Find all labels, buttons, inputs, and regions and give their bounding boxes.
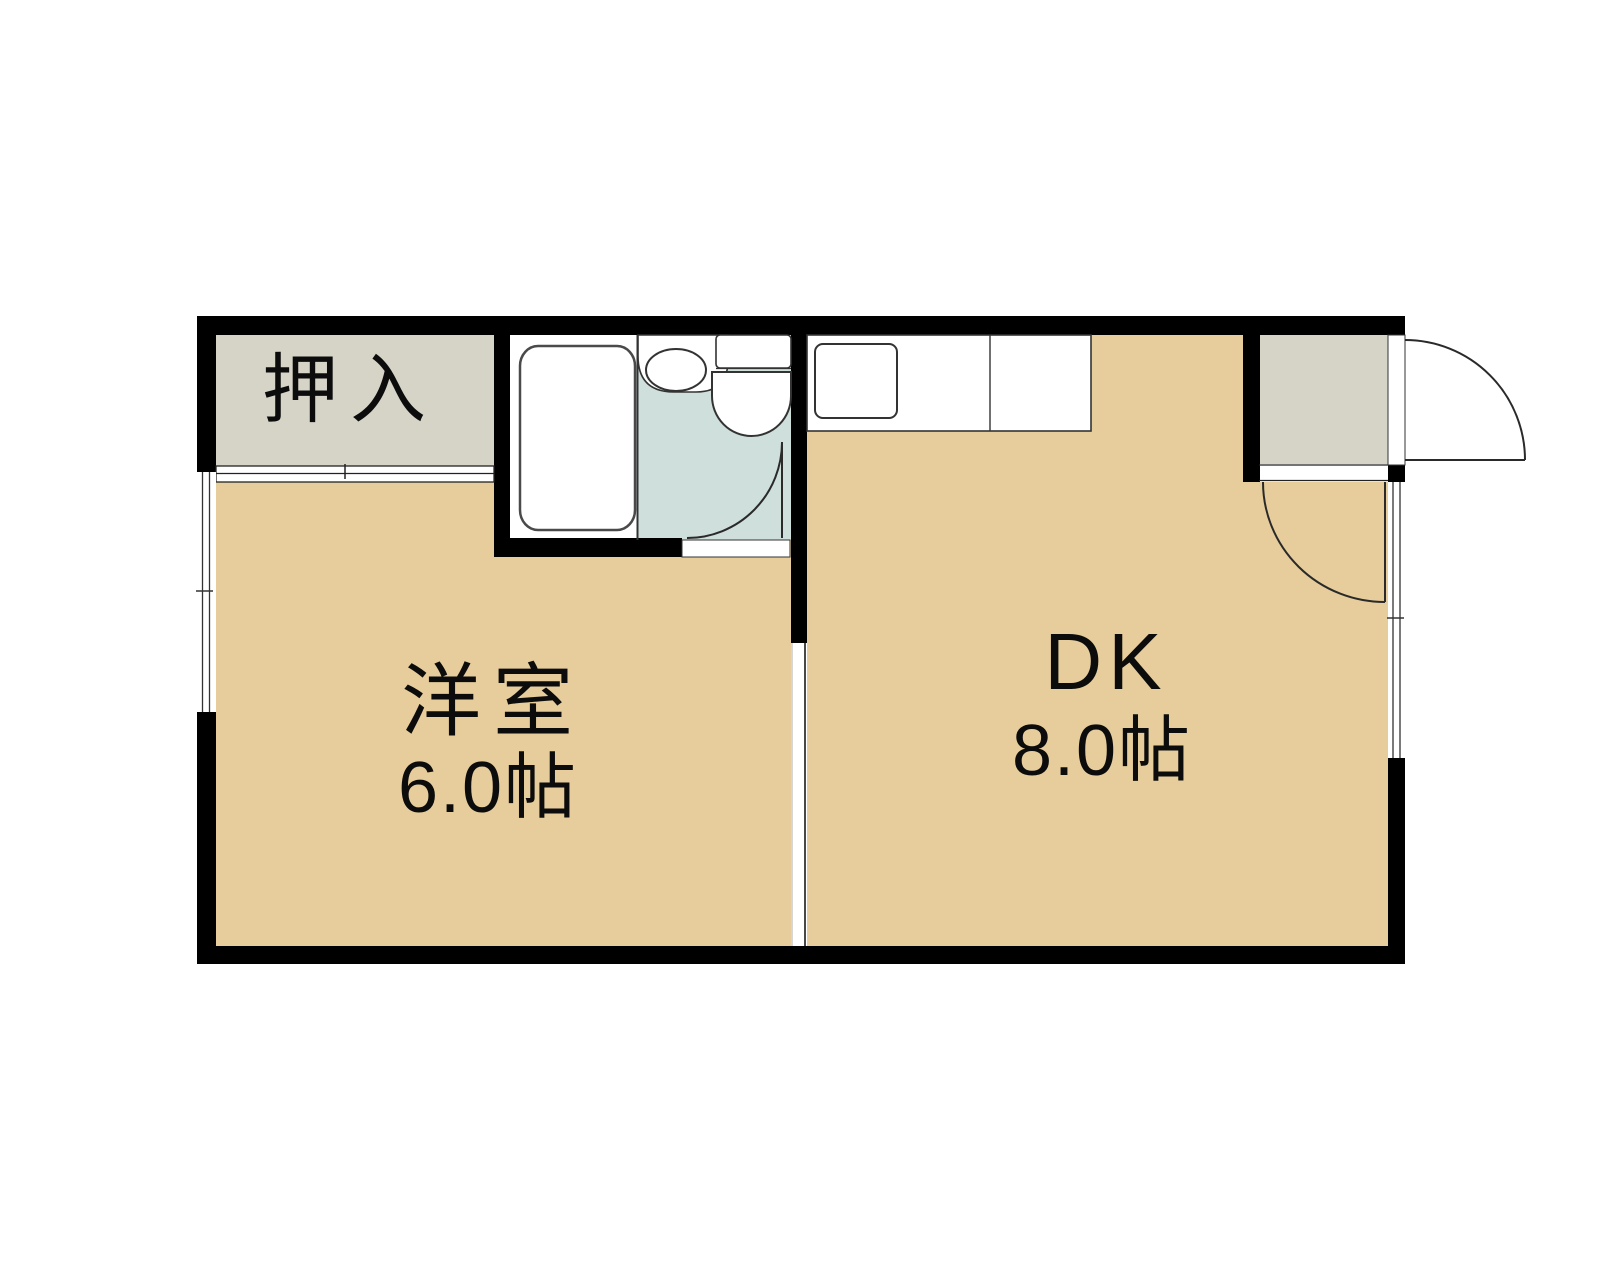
closet-sliding-door — [216, 464, 494, 482]
western-room-label: 洋室 — [401, 662, 585, 742]
western-room-size: 6.0帖 — [398, 752, 578, 824]
outer-wall-top — [197, 316, 1405, 335]
outer-wall-left-upper — [197, 316, 216, 472]
dining-kitchen-label: DK — [1044, 622, 1167, 702]
sink-basin — [646, 349, 706, 391]
entrance-threshold — [1259, 464, 1388, 482]
entrance-door-arc — [1405, 340, 1525, 460]
closet-label: 押入 — [262, 353, 438, 429]
floor-plan: 押入 洋室 6.0帖 DK 8.0帖 — [0, 0, 1600, 1280]
outer-wall-right-block — [1388, 465, 1405, 482]
room-divider-sliding-door — [791, 643, 807, 946]
entrance-floor — [1260, 335, 1388, 464]
entrance-wall-left — [1243, 335, 1260, 482]
partition-wall-middle — [791, 335, 807, 643]
floor-plan-drawing — [0, 0, 1600, 1280]
window-right — [1387, 482, 1405, 758]
bathroom-threshold — [682, 540, 790, 557]
window-left — [196, 472, 216, 712]
dining-kitchen-size: 8.0帖 — [1012, 715, 1192, 787]
outer-wall-bottom — [197, 946, 1405, 964]
toilet-tank — [716, 335, 791, 368]
toilet — [712, 335, 791, 436]
outer-wall-left-lower — [197, 712, 216, 964]
bathtub — [520, 346, 635, 530]
outer-wall-right-lower — [1388, 758, 1405, 964]
kitchen-sink — [815, 344, 897, 418]
kitchen-counter — [807, 335, 1091, 431]
entrance-door — [1388, 335, 1525, 465]
bath-wall-left — [494, 335, 510, 557]
bath-wall-bottom — [494, 538, 682, 557]
